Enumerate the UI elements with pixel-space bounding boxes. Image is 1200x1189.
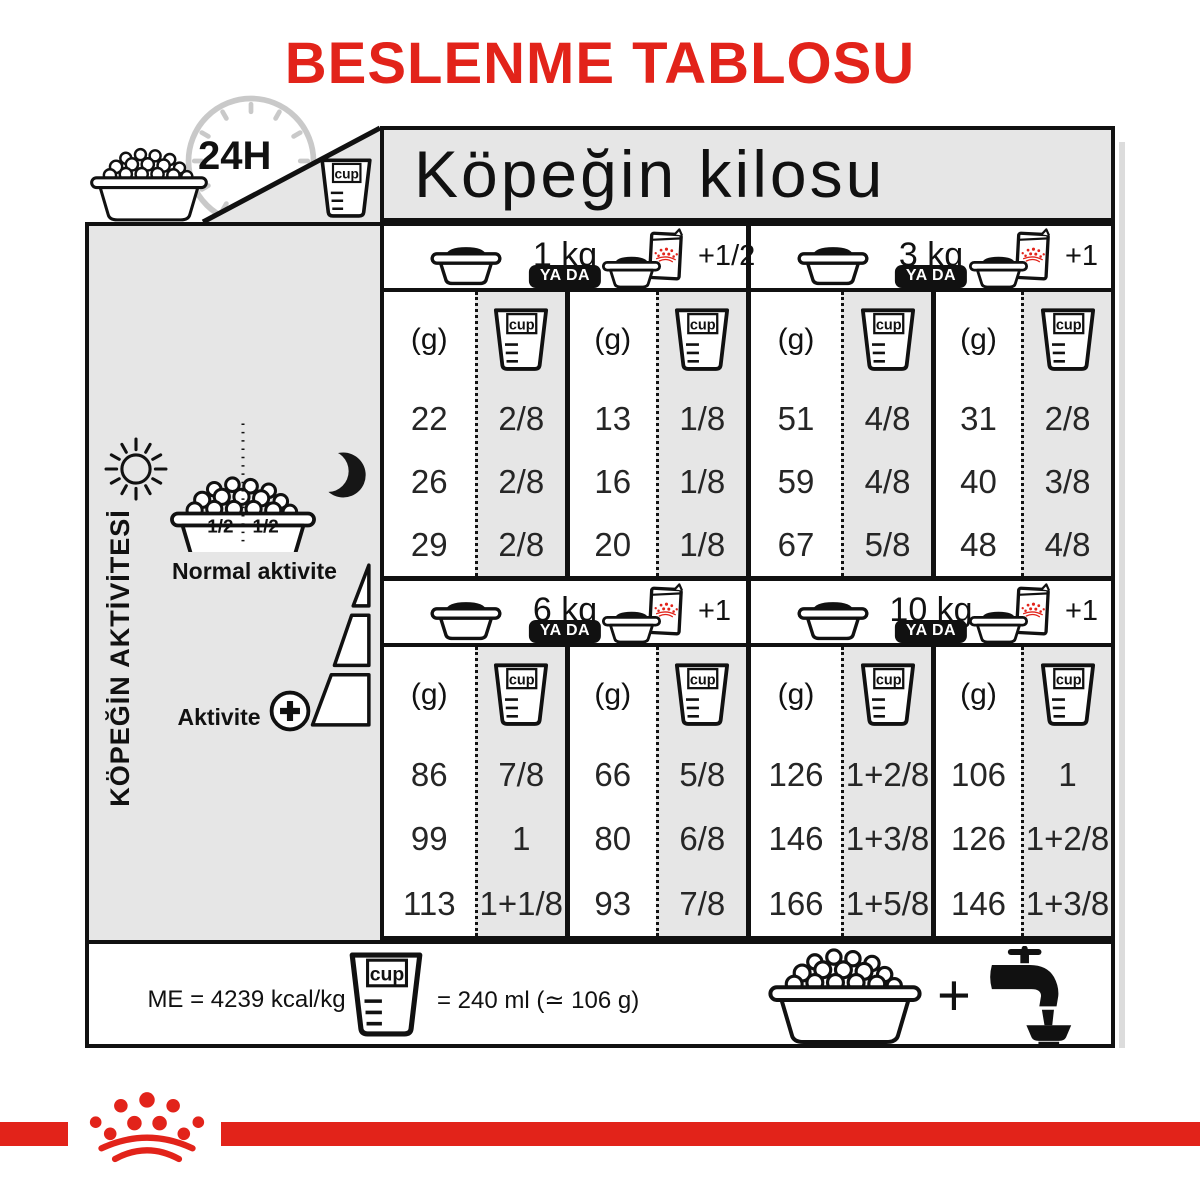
page-title: BESLENME TABLOSU: [0, 30, 1200, 97]
grams-value: 48: [936, 513, 1021, 576]
grams-value: 113: [384, 872, 475, 936]
plus-sign: +: [937, 962, 971, 1029]
grams-value: 59: [751, 451, 841, 514]
activity-label: Aktivite: [174, 704, 264, 731]
activity-axis-label: KÖPEĞİN AKTİVİTESİ: [105, 508, 139, 808]
cup-icon: [493, 308, 549, 372]
cup-icon: [674, 663, 730, 727]
weight-section-3kg: 3 kg +1 YA DA (g) 51 59 67 4/8 4/8 5/8: [751, 226, 1111, 576]
grams-value: 51: [751, 388, 841, 451]
cup-value: 1/8: [659, 451, 747, 514]
grams-value: 146: [751, 807, 841, 871]
cup-icon: [493, 663, 549, 727]
mix-cup-column: 1/8 1/8 1/8: [656, 292, 747, 576]
cup-value: 1+5/8: [844, 872, 931, 936]
mix-cup-column: 5/8 6/8 7/8: [656, 647, 747, 936]
cup-header: [844, 647, 931, 743]
dry-cup-column: 2/8 2/8 2/8: [475, 292, 566, 576]
cup-icon: [1040, 308, 1096, 372]
grams-header: (g): [936, 292, 1021, 388]
weight-section-1kg: 1 kg +1/2 YA DA (g) 22 26 29 2/8 2/8 2/8: [384, 226, 746, 576]
cup-value: 1+1/8: [478, 872, 566, 936]
pouch-extra-label: +1: [1065, 240, 1098, 273]
moon-icon: [320, 445, 368, 505]
grams-value: 16: [570, 451, 656, 514]
table-shadow-strip: [1119, 142, 1125, 1048]
grams-header: (g): [384, 647, 475, 743]
cup-value: 4/8: [844, 388, 931, 451]
mix-grams-column: (g) 106 126 146: [931, 647, 1021, 936]
mix-cup-column: 1 1+2/8 1+3/8: [1021, 647, 1111, 936]
weight-header-box: Köpeğin kilosu: [380, 126, 1115, 222]
grams-value: 86: [384, 743, 475, 807]
mix-grams-column: (g) 66 80 93: [565, 647, 656, 936]
cup-equivalence-label: = 240 ml (≃ 106 g): [437, 986, 639, 1015]
water-tap-icon: [986, 946, 1084, 1046]
me-energy-label: ME = 4239 kcal/kg: [114, 986, 379, 1014]
cup-value: 1+2/8: [844, 743, 931, 807]
grams-header: (g): [751, 647, 841, 743]
or-badge: YA DA: [895, 620, 967, 643]
section-data: (g) 126 146 166 1+2/8 1+3/8 1+5/8 (g) 10…: [751, 647, 1111, 936]
cup-header: [659, 647, 747, 743]
cup-value: 1: [1024, 743, 1111, 807]
section-header: 6 kg +1 YA DA: [384, 581, 746, 647]
dry-cup-column: 4/8 4/8 5/8: [841, 292, 931, 576]
cup-icon: [860, 308, 916, 372]
cup-header: [478, 647, 566, 743]
grams-value: 99: [384, 807, 475, 871]
sun-icon: [99, 432, 173, 506]
grams-value: 126: [751, 743, 841, 807]
grams-value: 126: [936, 807, 1021, 871]
cup-value: 5/8: [844, 513, 931, 576]
dry-grams-column: (g) 126 146 166: [751, 647, 841, 936]
cup-value: 2/8: [478, 513, 566, 576]
grams-value: 29: [384, 513, 475, 576]
cup-header: [844, 292, 931, 388]
cup-value: 1+3/8: [1024, 872, 1111, 936]
cup-icon: [860, 663, 916, 727]
cup-header: [478, 292, 566, 388]
svg-text:1/2: 1/2: [207, 516, 233, 537]
cup-value: 7/8: [659, 872, 747, 936]
cup-value: 1/8: [659, 388, 747, 451]
grams-value: 80: [570, 807, 656, 871]
cup-header: [659, 292, 747, 388]
measuring-cup-icon: [320, 158, 372, 219]
cup-value: 2/8: [1024, 388, 1111, 451]
grams-header: (g): [570, 292, 656, 388]
plus-circle-icon: [267, 688, 313, 734]
cup-value: 1+2/8: [1024, 807, 1111, 871]
section-data: (g) 86 99 113 7/8 1 1+1/8 (g) 66 80 93: [384, 647, 746, 936]
section-data: (g) 22 26 29 2/8 2/8 2/8 (g) 13 16 20: [384, 292, 746, 576]
weight-section-6kg: 6 kg +1 YA DA (g) 86 99 113 7/8 1 1+1/8: [384, 581, 746, 936]
section-header: 1 kg +1/2 YA DA: [384, 226, 746, 292]
cup-value: 4/8: [1024, 513, 1111, 576]
legend-row: ME = 4239 kcal/kg = 240 ml (≃ 106 g) +: [85, 940, 1115, 1048]
grams-value: 26: [384, 451, 475, 514]
bowl-pouch-icon: [965, 583, 1063, 645]
cup-value: 1+3/8: [844, 807, 931, 871]
cup-value: 1/8: [659, 513, 747, 576]
dry-grams-column: (g) 86 99 113: [384, 647, 475, 936]
cup-icon: [674, 308, 730, 372]
mix-grams-column: (g) 13 16 20: [565, 292, 656, 576]
split-bowl-icon: 1/2 1/2: [167, 422, 319, 552]
feeding-table: 1 kg +1/2 YA DA (g) 22 26 29 2/8 2/8 2/8: [380, 222, 1115, 940]
grams-header: (g): [384, 292, 475, 388]
bowl-pouch-icon: [598, 583, 696, 645]
royal-canin-crown-logo: [86, 1090, 208, 1166]
grams-value: 67: [751, 513, 841, 576]
weight-header-title: Köpeğin kilosu: [414, 136, 885, 212]
mix-grams-column: (g) 31 40 48: [931, 292, 1021, 576]
kibble-bowl-icon: [88, 146, 210, 223]
svg-text:1/2: 1/2: [253, 516, 279, 537]
cup-header: [1024, 647, 1111, 743]
grams-value: 40: [936, 451, 1021, 514]
grams-value: 22: [384, 388, 475, 451]
dry-grams-column: (g) 51 59 67: [751, 292, 841, 576]
section-header: 10 kg +1 YA DA: [751, 581, 1111, 647]
grams-value: 31: [936, 388, 1021, 451]
pouch-extra-label: +1: [698, 595, 731, 628]
dry-cup-column: 1+2/8 1+3/8 1+5/8: [841, 647, 931, 936]
cup-value: 1: [478, 807, 566, 871]
grams-value: 66: [570, 743, 656, 807]
measuring-cup-icon: [345, 952, 427, 1038]
cup-value: 4/8: [844, 451, 931, 514]
cup-value: 2/8: [478, 451, 566, 514]
section-header: 3 kg +1 YA DA: [751, 226, 1111, 292]
cup-value: 7/8: [478, 743, 566, 807]
or-badge: YA DA: [529, 265, 601, 288]
grams-header: (g): [936, 647, 1021, 743]
feeding-table-page: BESLENME TABLOSU 24H Köpeğin kilosu KÖPE…: [0, 0, 1200, 1189]
section-data: (g) 51 59 67 4/8 4/8 5/8 (g) 31 40 48: [751, 292, 1111, 576]
grams-value: 166: [751, 872, 841, 936]
pouch-extra-label: +1/2: [698, 240, 755, 273]
grams-value: 13: [570, 388, 656, 451]
kibble-bowl-icon: [761, 946, 929, 1046]
cup-value: 5/8: [659, 743, 747, 807]
pouch-extra-label: +1: [1065, 595, 1098, 628]
cup-icon: [1040, 663, 1096, 727]
24h-label: 24H: [198, 134, 271, 179]
mix-cup-column: 2/8 3/8 4/8: [1021, 292, 1111, 576]
grams-value: 106: [936, 743, 1021, 807]
red-strip-left: [0, 1122, 68, 1146]
red-strip-right: [221, 1122, 1200, 1146]
cup-value: 6/8: [659, 807, 747, 871]
cup-value: 3/8: [1024, 451, 1111, 514]
bowl-pouch-icon: [598, 228, 696, 290]
grams-value: 20: [570, 513, 656, 576]
weight-section-10kg: 10 kg +1 YA DA (g) 126 146 166 1+2/8 1+3…: [751, 581, 1111, 936]
activity-sidebar: KÖPEĞİN AKTİVİTESİ 1/2 1/2 Normal aktivi…: [85, 222, 380, 940]
or-badge: YA DA: [895, 265, 967, 288]
grams-header: (g): [570, 647, 656, 743]
grams-value: 93: [570, 872, 656, 936]
bowl-pouch-icon: [965, 228, 1063, 290]
cup-header: [1024, 292, 1111, 388]
or-badge: YA DA: [529, 620, 601, 643]
cup-value: 2/8: [478, 388, 566, 451]
dry-grams-column: (g) 22 26 29: [384, 292, 475, 576]
dry-cup-column: 7/8 1 1+1/8: [475, 647, 566, 936]
grams-value: 146: [936, 872, 1021, 936]
grams-header: (g): [751, 292, 841, 388]
